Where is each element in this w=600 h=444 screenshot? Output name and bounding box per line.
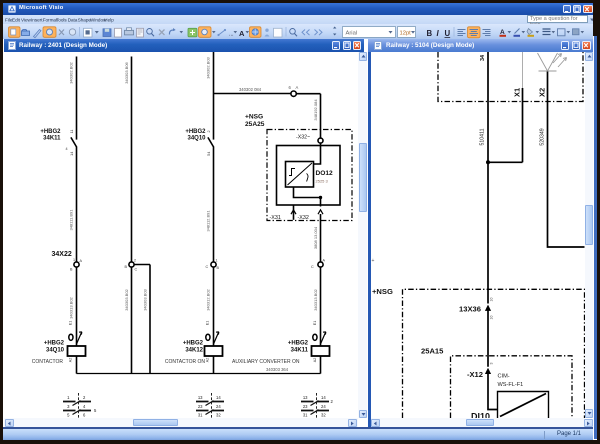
svg-text:6: 6 <box>83 413 86 418</box>
svg-text:31: 31 <box>198 413 203 418</box>
svg-text:U: U <box>445 29 451 38</box>
svg-text:+NSG: +NSG <box>372 287 393 296</box>
svg-text:23: 23 <box>198 404 203 409</box>
svg-text:A2: A2 <box>69 358 73 363</box>
svg-text:C: C <box>135 268 138 272</box>
svg-text:24: 24 <box>216 404 221 409</box>
svg-text:4: 4 <box>83 404 86 409</box>
svg-text:View: View <box>21 17 32 22</box>
svg-text:-X12: -X12 <box>467 370 483 379</box>
svg-text:13: 13 <box>303 395 308 400</box>
svg-text:14: 14 <box>321 395 326 400</box>
svg-text:Tools: Tools <box>56 17 67 22</box>
svg-text:34: 34 <box>480 54 486 61</box>
svg-text:CONTACTOR: CONTACTOR <box>32 359 64 365</box>
svg-text:1: 1 <box>73 258 75 262</box>
svg-text:12pt: 12pt <box>400 30 412 36</box>
svg-text:14: 14 <box>216 395 221 400</box>
svg-text:+HBG2: +HBG2 <box>183 341 204 347</box>
svg-text:3: 3 <box>67 404 70 409</box>
svg-text:2: 2 <box>83 395 86 400</box>
svg-text:348192.084: 348192.084 <box>313 99 318 121</box>
svg-text:32: 32 <box>216 413 221 418</box>
svg-text:340313.B02: 340313.B02 <box>313 288 318 310</box>
svg-text:14: 14 <box>70 152 74 156</box>
svg-text:DO12: DO12 <box>316 170 334 177</box>
svg-text:A2: A2 <box>313 358 317 363</box>
svg-text:34X22: 34X22 <box>52 251 72 258</box>
svg-text:AUXILIARY CONVERTER ON: AUXILIARY CONVERTER ON <box>232 359 300 365</box>
svg-text:A: A <box>296 85 299 90</box>
svg-text:340313.B02: 340313.B02 <box>69 296 74 318</box>
svg-text:340302.B02: 340302.B02 <box>69 61 74 83</box>
svg-text:+NSG: +NSG <box>245 114 263 121</box>
svg-text:34Q10: 34Q10 <box>46 348 65 354</box>
svg-text:-X32~: -X32~ <box>296 135 310 141</box>
svg-text:340303.B03: 340303.B03 <box>143 288 148 310</box>
svg-text:34K12: 34K12 <box>185 348 203 354</box>
svg-text:Help: Help <box>104 17 114 22</box>
svg-text:C: C <box>311 265 314 269</box>
svg-text:32: 32 <box>321 413 326 418</box>
svg-text:+HBG2: +HBG2 <box>288 341 309 347</box>
svg-text:B: B <box>427 29 433 38</box>
svg-text:3808 13.004: 3808 13.004 <box>313 226 318 249</box>
svg-text:E1: E1 <box>206 321 210 326</box>
svg-text:54: 54 <box>207 152 211 156</box>
svg-text:340303 364: 340303 364 <box>266 367 289 372</box>
svg-text:10: 10 <box>490 298 494 302</box>
svg-text:13X36: 13X36 <box>459 305 481 314</box>
svg-text:25A25: 25A25 <box>245 121 265 128</box>
svg-text:34K11: 34K11 <box>43 136 61 142</box>
svg-text:-X31: -X31 <box>270 215 281 221</box>
svg-text:A: A <box>239 29 245 38</box>
svg-text:A: A <box>323 259 326 263</box>
svg-text:24: 24 <box>321 404 326 409</box>
svg-text:+HBG2: +HBG2 <box>40 129 61 135</box>
svg-text:10: 10 <box>490 316 494 320</box>
svg-text:23: 23 <box>303 404 308 409</box>
svg-text:...: ... <box>229 32 234 38</box>
svg-text:I: I <box>437 29 440 38</box>
svg-text:B: B <box>217 266 220 270</box>
svg-text:1: 1 <box>67 395 70 400</box>
svg-text:A: A <box>80 259 83 263</box>
svg-text:+HBG2: +HBG2 <box>44 341 65 347</box>
svg-text:5: 5 <box>67 413 70 418</box>
svg-text:-X32: -X32 <box>298 215 309 221</box>
svg-text:4: 4 <box>66 147 68 151</box>
svg-text:WS-FL-F1: WS-FL-F1 <box>498 382 524 388</box>
svg-text:510411: 510411 <box>480 128 486 145</box>
svg-text:34K11: 34K11 <box>291 348 309 354</box>
svg-text:340303.B06: 340303.B06 <box>124 61 129 83</box>
svg-text:6: 6 <box>289 85 292 90</box>
svg-text:25A15: 25A15 <box>421 347 444 356</box>
svg-text:11: 11 <box>70 130 74 134</box>
svg-text:X2: X2 <box>538 88 547 97</box>
svg-text:E1: E1 <box>69 321 73 326</box>
svg-text:348111.B91: 348111.B91 <box>69 209 74 231</box>
svg-text:3: 3 <box>490 362 494 364</box>
svg-text:Data: Data <box>68 17 78 22</box>
svg-text:34Q10: 34Q10 <box>187 136 206 142</box>
svg-text:B: B <box>70 268 73 272</box>
svg-text:A2: A2 <box>206 358 210 363</box>
svg-text:Insert: Insert <box>31 17 43 22</box>
svg-text:+HBG2: +HBG2 <box>185 129 206 135</box>
svg-text:+: + <box>372 258 375 264</box>
svg-text:348112.B91: 348112.B91 <box>206 210 211 232</box>
svg-text:X1: X1 <box>513 88 522 97</box>
svg-text:Arial: Arial <box>346 30 358 36</box>
svg-text:5: 5 <box>94 408 97 413</box>
svg-text:13: 13 <box>198 395 203 400</box>
svg-text:2: 2 <box>134 259 136 263</box>
svg-text:CIM-: CIM- <box>498 374 510 380</box>
svg-text:340302 084: 340302 084 <box>239 87 262 92</box>
svg-text:2: 2 <box>331 399 334 404</box>
svg-text:520349: 520349 <box>540 128 546 145</box>
svg-text:340312.B02: 340312.B02 <box>206 288 211 310</box>
svg-text:31: 31 <box>303 413 308 418</box>
svg-text:340302.B03: 340302.B03 <box>206 56 211 78</box>
svg-text:C: C <box>206 265 209 269</box>
svg-text:B: B <box>125 265 128 269</box>
svg-text:2525 3: 2525 3 <box>316 179 329 184</box>
svg-text:E1: E1 <box>313 321 317 326</box>
svg-text:1: 1 <box>216 259 218 263</box>
svg-text:Edit: Edit <box>12 17 21 22</box>
svg-text:2: 2 <box>207 130 211 132</box>
svg-text:340303.B02: 340303.B02 <box>124 288 129 310</box>
svg-text:CONTACTOR ON: CONTACTOR ON <box>165 359 205 365</box>
